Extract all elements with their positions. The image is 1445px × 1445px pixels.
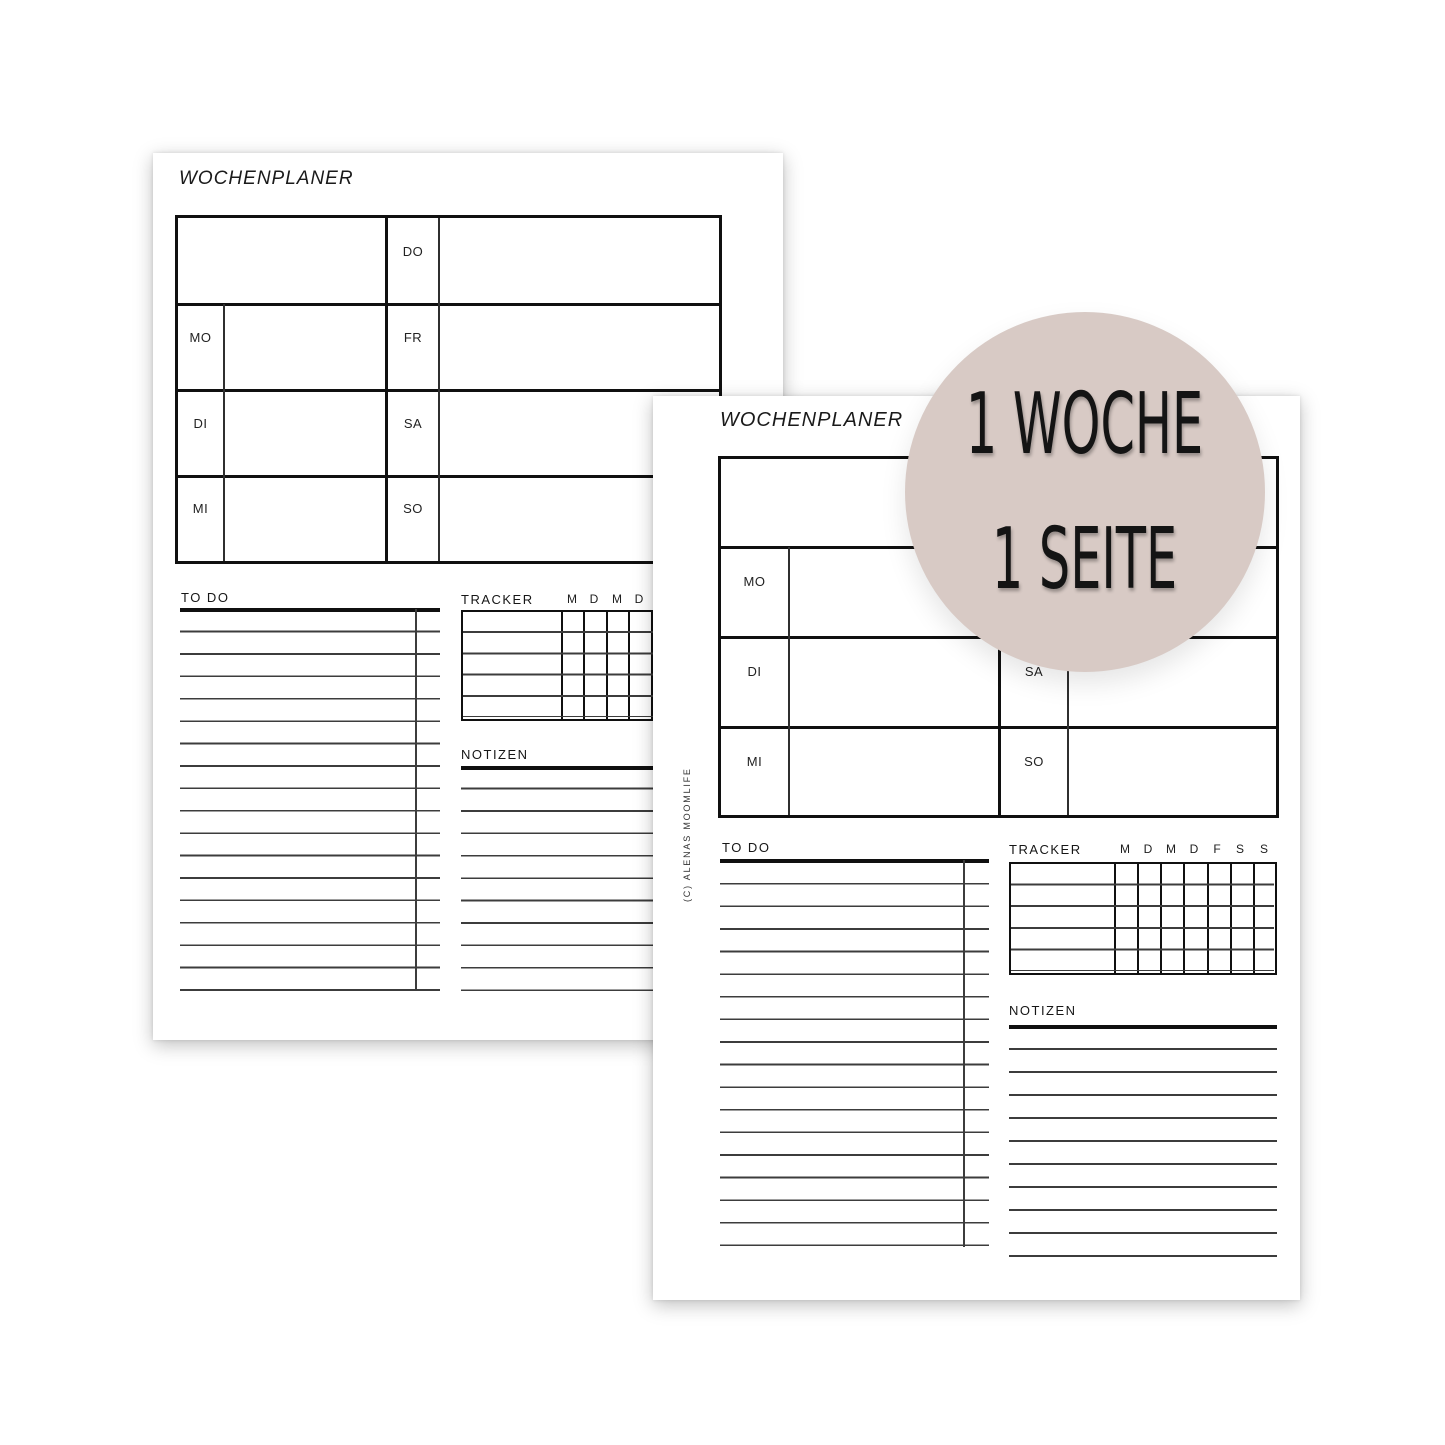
grid-label-divider bbox=[788, 547, 790, 815]
todo-ruled-lines bbox=[180, 610, 440, 991]
tracker-day-header: D bbox=[628, 592, 650, 606]
tracker-day-header: M bbox=[561, 592, 583, 606]
grid-row-line bbox=[178, 475, 719, 478]
tracker-day-header: D bbox=[1183, 842, 1205, 856]
page-title: WOCHENPLANER bbox=[720, 409, 903, 432]
grid-label-divider bbox=[223, 304, 225, 561]
copyright-vertical-text: (C) ALENAS MOOMLIFE bbox=[678, 784, 696, 902]
grid-label-divider bbox=[438, 218, 440, 561]
week-grid: MO DI MI DO FR SA SO bbox=[175, 215, 722, 564]
tracker-day-header: S bbox=[1253, 842, 1275, 856]
tracker-row-lines bbox=[1011, 864, 1274, 971]
todo-checkbox-column-divider bbox=[963, 860, 965, 1247]
day-label-di: DI bbox=[178, 390, 223, 476]
grid-row-line bbox=[178, 303, 719, 306]
day-label-mi: MI bbox=[178, 476, 223, 561]
badge-line-2: 1 SEITE bbox=[966, 492, 1203, 627]
day-label-mi: MI bbox=[721, 727, 788, 815]
tracker-day-header: F bbox=[1206, 842, 1228, 856]
day-label-so: SO bbox=[1001, 727, 1067, 815]
tracker-title: TRACKER bbox=[1009, 842, 1082, 857]
day-label-mo: MO bbox=[178, 304, 223, 390]
tracker-day-header: M bbox=[1160, 842, 1182, 856]
grid-row-line bbox=[178, 389, 719, 392]
day-label-fr: FR bbox=[388, 304, 438, 390]
day-label-sa: SA bbox=[388, 390, 438, 476]
promo-badge-text: 1 WOCHE 1 SEITE bbox=[880, 357, 1289, 627]
tracker-day-header: D bbox=[1137, 842, 1159, 856]
tracker-day-header: M bbox=[606, 592, 628, 606]
day-label-do: DO bbox=[388, 218, 438, 304]
notizen-ruled-lines bbox=[1009, 1027, 1277, 1258]
todo-title: TO DO bbox=[722, 840, 770, 855]
todo-ruled-lines bbox=[720, 862, 989, 1247]
tracker-day-header: D bbox=[583, 592, 605, 606]
tracker-grid bbox=[1009, 862, 1277, 975]
day-label-di: DI bbox=[721, 637, 788, 726]
todo-checkbox-column-divider bbox=[415, 609, 417, 991]
tracker-day-header: S bbox=[1229, 842, 1251, 856]
tracker-title: TRACKER bbox=[461, 592, 534, 607]
badge-line-1: 1 WOCHE bbox=[966, 357, 1203, 492]
page-title: WOCHENPLANER bbox=[179, 168, 354, 190]
tracker-day-header: M bbox=[1114, 842, 1136, 856]
todo-title: TO DO bbox=[181, 590, 229, 605]
day-label-mo: MO bbox=[721, 547, 788, 636]
notizen-title: NOTIZEN bbox=[461, 747, 529, 762]
promo-badge-circle: 1 WOCHE 1 SEITE bbox=[905, 312, 1265, 672]
notizen-title: NOTIZEN bbox=[1009, 1003, 1077, 1018]
day-label-so: SO bbox=[388, 476, 438, 561]
